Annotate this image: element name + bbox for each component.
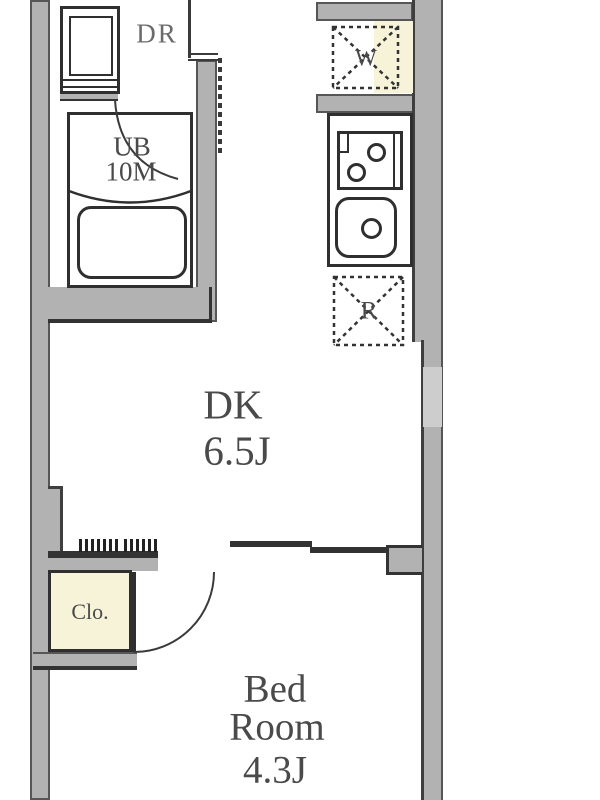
floorplan: DR UB 10M W R DK 6.5J Clo. Bed Room 4.3J [0,0,600,800]
dining-kitchen-size: 6.5J [203,431,270,472]
bedroom-door-arc-icon [134,572,214,652]
washing-machine-label: W [355,47,377,70]
refrigerator-label: R [361,299,378,324]
unit-bath-size: 10M [105,159,156,186]
dressing-room-label: DR [136,21,178,48]
bath-rim-curve [69,191,191,203]
dining-kitchen-label: DK [203,385,262,426]
bedroom-label-line1: Bed [244,670,307,709]
bedroom-label-line2: Room [229,708,324,747]
closet-label: Clo. [71,601,108,623]
bedroom-size: 4.3J [243,751,307,790]
